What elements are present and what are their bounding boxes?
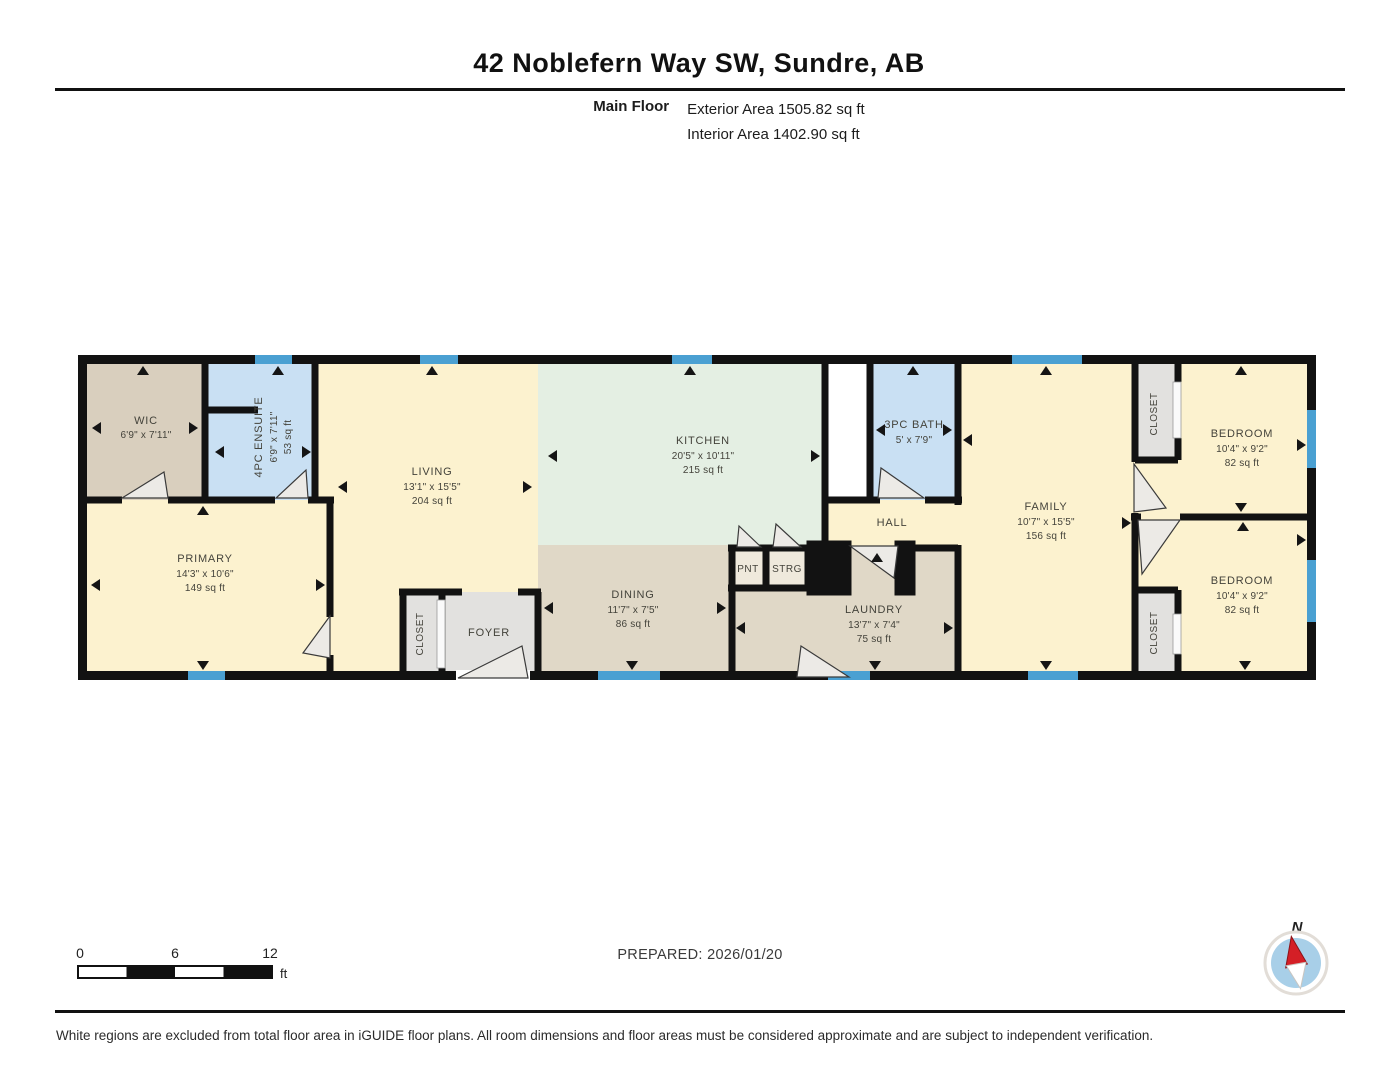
room-hall-label: HALL	[877, 517, 908, 529]
window-icon	[598, 671, 660, 680]
room-family-dims: 10'7" x 15'5"	[1017, 517, 1075, 528]
room-kitchen-label: KITCHEN	[676, 435, 730, 447]
room-family-label: FAMILY	[1024, 501, 1067, 513]
room-primary-area: 149 sq ft	[185, 583, 225, 594]
disclaimer-text: White regions are excluded from total fl…	[56, 1028, 1358, 1043]
room-bath-dims: 5' x 7'9"	[896, 435, 933, 446]
window-icon	[255, 355, 292, 364]
scale-tick-6: 6	[171, 945, 179, 961]
room-pantry-label: PNT	[737, 564, 759, 575]
excluded-region	[825, 363, 870, 500]
room-storage-label: STRG	[772, 564, 802, 575]
room-dining-label: DINING	[611, 589, 654, 601]
room-foyer-label: FOYER	[468, 627, 510, 639]
room-kitchen-dims: 20'5" x 10'11"	[672, 451, 735, 462]
scale-tick-12: 12	[262, 945, 278, 961]
window-icon	[1028, 671, 1078, 680]
room-wic-dims: 6'9" x 7'11"	[121, 430, 172, 441]
compass-rose: N	[1265, 919, 1327, 994]
room-living-label: LIVING	[412, 466, 453, 478]
footer-divider	[55, 1010, 1345, 1013]
room-laundry-dims: 13'7" x 7'4"	[848, 620, 900, 631]
room-bath-label: 3PC BATH	[884, 419, 943, 431]
prepared-date: PREPARED: 2026/01/20	[550, 947, 850, 963]
room-bedroom2-dims: 10'4" x 9'2"	[1216, 591, 1268, 602]
room-bedroom2-label: BEDROOM	[1211, 575, 1273, 587]
scale-bar-segment	[224, 966, 273, 978]
scale-unit: ft	[280, 966, 288, 981]
scale-tick-0: 0	[76, 945, 84, 961]
room-bedroom1-closet-label: CLOSET	[1149, 392, 1160, 435]
room-primary-dims: 14'3" x 10'6"	[176, 569, 234, 580]
room-bedroom1-label: BEDROOM	[1211, 428, 1273, 440]
scale-bar-segment	[127, 966, 176, 978]
room-laundry-area: 75 sq ft	[857, 634, 891, 645]
room-ensuite-area: 53 sq ft	[283, 420, 294, 454]
room-dining-area: 86 sq ft	[616, 619, 650, 630]
room-wic-label: WIC	[134, 415, 158, 427]
window-icon	[420, 355, 458, 364]
floor-plan: WIC 6'9" x 7'11" 4PC ENSUITE 6'9" x 7'11…	[0, 0, 1398, 1080]
window-icon	[1307, 560, 1316, 622]
window-icon	[672, 355, 712, 364]
window-icon	[1307, 410, 1316, 468]
room-fills	[87, 363, 1311, 676]
room-bedroom2-area: 82 sq ft	[1225, 605, 1259, 616]
window-icon	[188, 671, 225, 680]
scale-bar: 0 6 12 ft	[76, 945, 288, 981]
room-bedroom1-area: 82 sq ft	[1225, 458, 1259, 469]
room-family-area: 156 sq ft	[1026, 531, 1066, 542]
room-ensuite-label: 4PC ENSUITE	[253, 397, 265, 478]
room-foyer-closet-label: CLOSET	[415, 612, 426, 655]
room-kitchen-area: 215 sq ft	[683, 465, 723, 476]
room-laundry-label: LAUNDRY	[845, 604, 903, 616]
room-dining-dims: 11'7" x 7'5"	[608, 605, 659, 616]
room-primary-label: PRIMARY	[177, 553, 233, 565]
room-living-area: 204 sq ft	[412, 496, 452, 507]
room-living-dims: 13'1" x 15'5"	[403, 482, 461, 493]
window-icon	[1012, 355, 1082, 364]
room-ensuite-dims: 6'9" x 7'11"	[269, 411, 280, 462]
room-bedroom1-dims: 10'4" x 9'2"	[1216, 444, 1268, 455]
room-bedroom2-closet-label: CLOSET	[1149, 611, 1160, 654]
